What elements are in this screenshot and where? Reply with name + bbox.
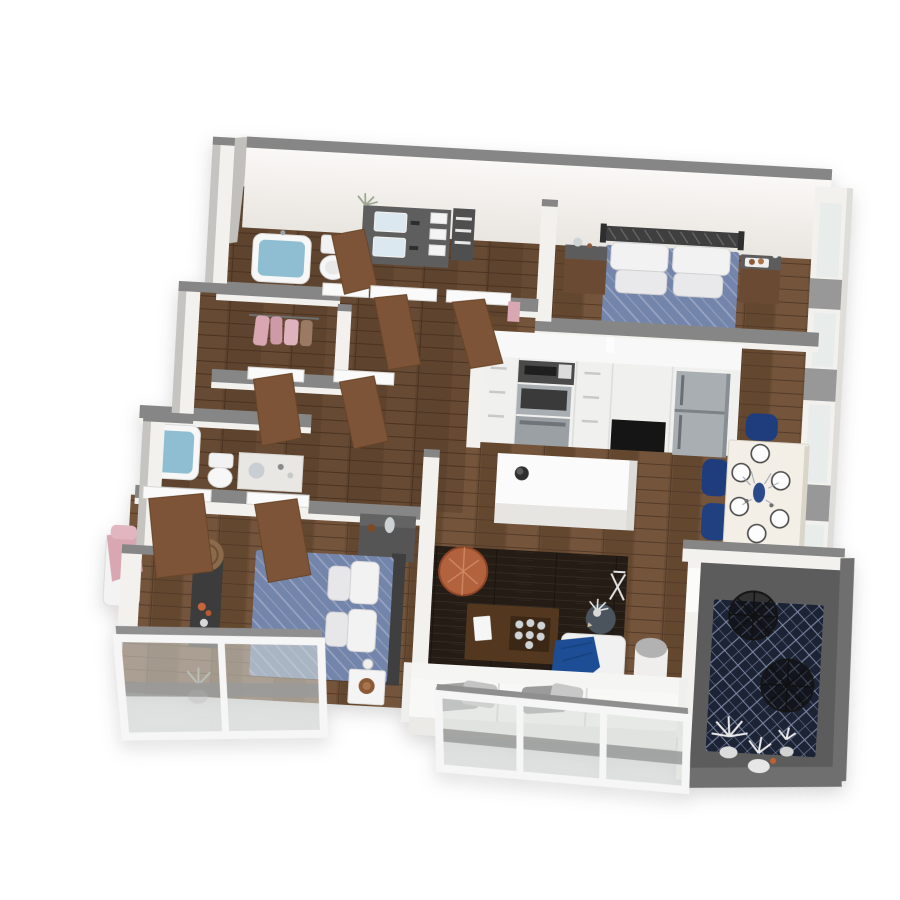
towel-shelf bbox=[451, 208, 476, 261]
coffee-table bbox=[464, 604, 559, 665]
refrigerator bbox=[672, 371, 731, 458]
kitchen-island bbox=[494, 453, 638, 531]
pink-pillow bbox=[110, 525, 137, 540]
dresser bbox=[358, 513, 416, 562]
balcony-door-opening bbox=[685, 568, 700, 613]
window-mullion bbox=[516, 703, 524, 775]
notebook bbox=[473, 616, 492, 641]
apartment bbox=[94, 130, 880, 799]
window-sill bbox=[803, 368, 841, 402]
bathtub bbox=[251, 229, 312, 285]
nightstand-right bbox=[739, 250, 782, 304]
paper-towel bbox=[606, 337, 615, 353]
range-hood-microwave bbox=[518, 360, 575, 385]
window-mullion bbox=[600, 710, 607, 782]
window-sill bbox=[808, 278, 846, 310]
floor-plan-canvas bbox=[0, 0, 900, 900]
dining-table bbox=[723, 440, 810, 556]
balcony bbox=[669, 539, 859, 796]
black-appliance bbox=[610, 419, 666, 452]
towels bbox=[429, 213, 447, 256]
vanity2 bbox=[237, 453, 303, 493]
window-wall-left bbox=[109, 618, 329, 748]
floor-plan-svg bbox=[0, 0, 900, 900]
